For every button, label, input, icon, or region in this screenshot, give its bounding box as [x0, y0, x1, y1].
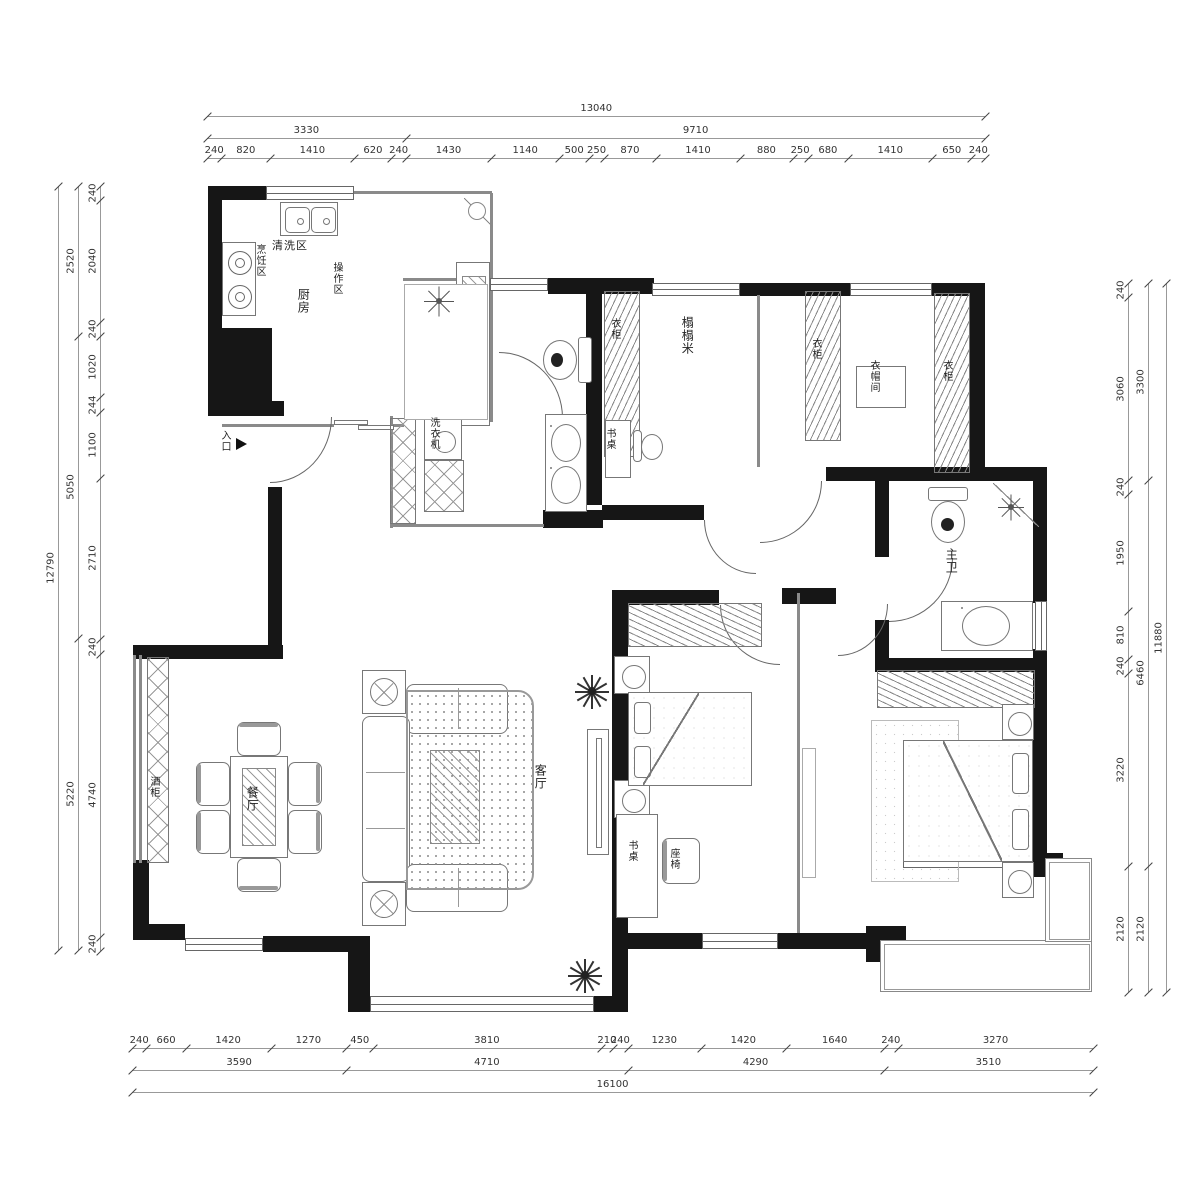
desk-bedroom2 [616, 814, 658, 918]
label-wardrobe-cloak-east: 衣柜 [941, 360, 952, 382]
top-tick [982, 134, 990, 142]
right-dim-value: 2120 [1136, 916, 1147, 941]
label-entrance: 入口 [219, 430, 230, 452]
top-dim-value: 9710 [683, 125, 708, 136]
master-basin [962, 606, 1010, 646]
right-dim-line-2 [1166, 283, 1167, 992]
label-chair-bedroom2: 座椅 [668, 848, 679, 870]
plant-1 [575, 674, 609, 708]
nightstand-m-s [1002, 862, 1034, 898]
nightstand-m-n [1002, 704, 1034, 740]
wardrobe-master [877, 670, 1035, 708]
right-dim-value: 810 [1116, 625, 1127, 644]
bottom-dim-value: 1230 [651, 1035, 676, 1046]
thin-wall-8 [133, 655, 136, 863]
label-wardrobe-tatami: 衣柜 [609, 318, 620, 340]
right-dim-value: 3060 [1116, 376, 1127, 401]
thin-wall-11 [797, 593, 800, 933]
bottom-dim-value: 3810 [474, 1035, 499, 1046]
wardrobe-cloak-east [934, 293, 970, 473]
bottom-dim-value: 4290 [743, 1057, 768, 1068]
label-kitchen: 厨房 [296, 288, 309, 314]
wall-4 [268, 487, 282, 647]
top-dim-value: 3330 [294, 125, 319, 136]
right-dim-value: 1950 [1116, 540, 1127, 565]
top-dim-value: 1140 [512, 145, 537, 156]
bed-bedroom2 [628, 692, 752, 786]
bottom-dim-line-1 [132, 1070, 1093, 1071]
wall-12 [628, 933, 702, 949]
wall-15 [586, 283, 602, 505]
bottom-dim-value: 450 [350, 1035, 369, 1046]
wine-cabinet [147, 657, 169, 863]
right-dim-value: 3300 [1136, 369, 1147, 394]
bed-master [903, 740, 1033, 862]
label-tatami-room: 榻榻米 [680, 316, 693, 355]
top-tick [982, 112, 990, 120]
left-dim-value: 240 [88, 637, 99, 656]
left-dim-value: 244 [88, 395, 99, 414]
floor-plan-canvas: 清洗区烹饪区厨房操作区入口洗衣机衣柜榻榻米书桌衣柜衣帽间衣柜主卫客厅餐厅酒柜书桌… [0, 0, 1200, 1200]
master-shower-head-icon [998, 494, 1024, 520]
top-dim-value: 870 [620, 145, 639, 156]
wardrobe-cloak-west [805, 291, 841, 441]
window-3 [1035, 601, 1047, 651]
thin-wall-5 [490, 282, 493, 422]
right-dim-value: 2120 [1116, 916, 1127, 941]
right-dim-value: 240 [1116, 281, 1127, 300]
left-dim-line-0 [100, 186, 101, 951]
entry-door-arc [270, 417, 332, 483]
dining-chair-n [237, 722, 281, 756]
toilet [541, 333, 591, 387]
basin-2 [551, 466, 581, 504]
top-dim-value: 240 [969, 145, 988, 156]
window-5 [702, 933, 778, 949]
dining-chair-w2 [196, 810, 230, 854]
bottom-dim-value: 1640 [822, 1035, 847, 1046]
label-desk-tatami: 书桌 [604, 428, 615, 450]
wall-16 [602, 505, 704, 520]
right-dim-value: 11880 [1154, 619, 1165, 657]
top-dim-value: 680 [818, 145, 837, 156]
wall-9 [348, 936, 370, 1012]
bottom-dim-value: 4710 [474, 1057, 499, 1068]
label-wardrobe-cloak-west: 衣柜 [810, 338, 821, 360]
left-dim-value: 5050 [66, 474, 77, 499]
dining-chair-w1 [196, 762, 230, 806]
top-dim-value: 880 [757, 145, 776, 156]
left-dim-value: 4740 [88, 782, 99, 807]
label-cloakroom: 衣帽间 [868, 360, 879, 393]
bottom-dim-value: 16100 [594, 1079, 632, 1090]
thin-wall-7 [390, 524, 544, 527]
kitchen-sliding-door [334, 420, 392, 429]
tv-panel-master [802, 748, 816, 878]
plant-2 [568, 958, 602, 992]
utility-cabinet-2 [424, 460, 464, 512]
top-dim-value: 1410 [300, 145, 325, 156]
window-2 [850, 283, 932, 296]
top-dim-value: 1410 [878, 145, 903, 156]
bottom-dim-value: 1420 [731, 1035, 756, 1046]
left-dim-value: 12790 [46, 549, 57, 587]
label-prep-zone: 操作区 [331, 262, 342, 295]
label-wine-cabinet: 酒柜 [148, 776, 159, 798]
office-chair [633, 426, 671, 470]
top-dim-value: 1430 [436, 145, 461, 156]
wall-7 [133, 924, 185, 940]
tv-cabinet [587, 729, 609, 855]
wall-31 [543, 510, 603, 528]
right-dim-value: 6460 [1136, 660, 1147, 685]
wall-13 [778, 933, 872, 949]
kitchen-corner-circle [468, 202, 486, 220]
thin-wall-9 [139, 655, 142, 863]
wall-27 [782, 588, 836, 604]
dining-chair-s [237, 858, 281, 892]
left-dim-value: 2520 [66, 248, 77, 273]
thin-wall-10 [757, 295, 760, 467]
right-dim-value: 3220 [1116, 757, 1127, 782]
coffee-table [430, 750, 480, 844]
label-washing-zone: 清洗区 [272, 240, 308, 252]
master-toilet [924, 487, 972, 545]
top-dim-value: 240 [389, 145, 408, 156]
left-dim-value: 240 [88, 934, 99, 953]
left-dim-value: 5220 [66, 781, 77, 806]
floor-plan-screenshot: 清洗区烹饪区厨房操作区入口洗衣机衣柜榻榻米书桌衣柜衣帽间衣柜主卫客厅餐厅酒柜书桌… [0, 0, 1200, 1200]
window-6 [370, 996, 594, 1012]
top-dim-line-2 [207, 158, 985, 159]
label-cooking-zone: 烹饪区 [254, 244, 265, 277]
top-dim-line-0 [207, 116, 985, 117]
left-dim-line-1 [78, 186, 79, 950]
label-living-room: 客厅 [533, 764, 546, 790]
bottom-dim-value: 240 [881, 1035, 900, 1046]
top-dim-value: 240 [205, 145, 224, 156]
bottom-dim-value: 1270 [296, 1035, 321, 1046]
thin-wall-0 [354, 191, 492, 194]
bottom-dim-value: 3270 [983, 1035, 1008, 1046]
window-0 [266, 186, 354, 200]
label-dining-room: 餐厅 [245, 786, 258, 812]
label-desk-bedroom2: 书桌 [626, 840, 637, 862]
lamp-1 [370, 678, 398, 706]
bottom-dim-value: 3590 [226, 1057, 251, 1068]
dining-chair-e1 [288, 762, 322, 806]
top-dim-value: 500 [565, 145, 584, 156]
wall-29 [1033, 658, 1047, 858]
tatami-door-arc [704, 520, 756, 574]
right-dim-value: 240 [1116, 478, 1127, 497]
label-washing-machine: 洗衣机 [428, 417, 439, 450]
left-dim-value: 2040 [88, 248, 99, 273]
window-7 [185, 938, 263, 951]
wardrobe-bedroom2 [628, 603, 762, 647]
lamp-2 [370, 890, 398, 918]
bottom-dim-line-2 [132, 1092, 1093, 1093]
dining-chair-e2 [288, 810, 322, 854]
sofa-main [362, 716, 410, 882]
basin-1 [551, 424, 581, 462]
wall-3 [208, 401, 284, 416]
shower-head-icon [424, 286, 454, 316]
balcony-1 [1045, 858, 1092, 942]
label-master-bath: 主卫 [944, 548, 957, 574]
left-dim-line-2 [58, 186, 59, 950]
top-dim-value: 650 [942, 145, 961, 156]
top-dim-value: 620 [363, 145, 382, 156]
wall-22 [875, 481, 889, 557]
cloakroom-island [856, 366, 906, 408]
top-dim-value: 250 [791, 145, 810, 156]
bottom-dim-value: 1420 [215, 1035, 240, 1046]
right-dim-value: 240 [1116, 657, 1127, 676]
left-dim-value: 1100 [88, 432, 99, 457]
left-dim-value: 240 [88, 320, 99, 339]
cloakroom-door-arc [760, 481, 822, 543]
stove [222, 242, 256, 316]
left-dim-value: 1020 [88, 354, 99, 379]
bottom-dim-value: 660 [156, 1035, 175, 1046]
window-1 [652, 283, 740, 296]
bottom-dim-value: 240 [611, 1035, 630, 1046]
right-dim-line-1 [1148, 283, 1149, 992]
wall-1 [208, 186, 222, 336]
bottom-dim-value: 240 [130, 1035, 149, 1046]
left-dim-value: 240 [88, 184, 99, 203]
top-dim-value: 820 [236, 145, 255, 156]
left-dim-value: 2710 [88, 546, 99, 571]
top-dim-value: 250 [587, 145, 606, 156]
nightstand-b2-n [614, 656, 650, 694]
top-dim-value: 1410 [685, 145, 710, 156]
top-dim-line-1 [207, 138, 985, 139]
bottom-dim-value: 3510 [976, 1057, 1001, 1068]
entry-arrow-icon [236, 438, 247, 450]
window-8 [490, 278, 548, 291]
kitchen-sink [280, 202, 338, 236]
wall-18 [969, 283, 985, 473]
balcony-0 [880, 940, 1092, 992]
utility-cabinet [390, 418, 416, 524]
right-dim-line-0 [1128, 283, 1129, 992]
top-dim-value: 13040 [577, 103, 615, 114]
